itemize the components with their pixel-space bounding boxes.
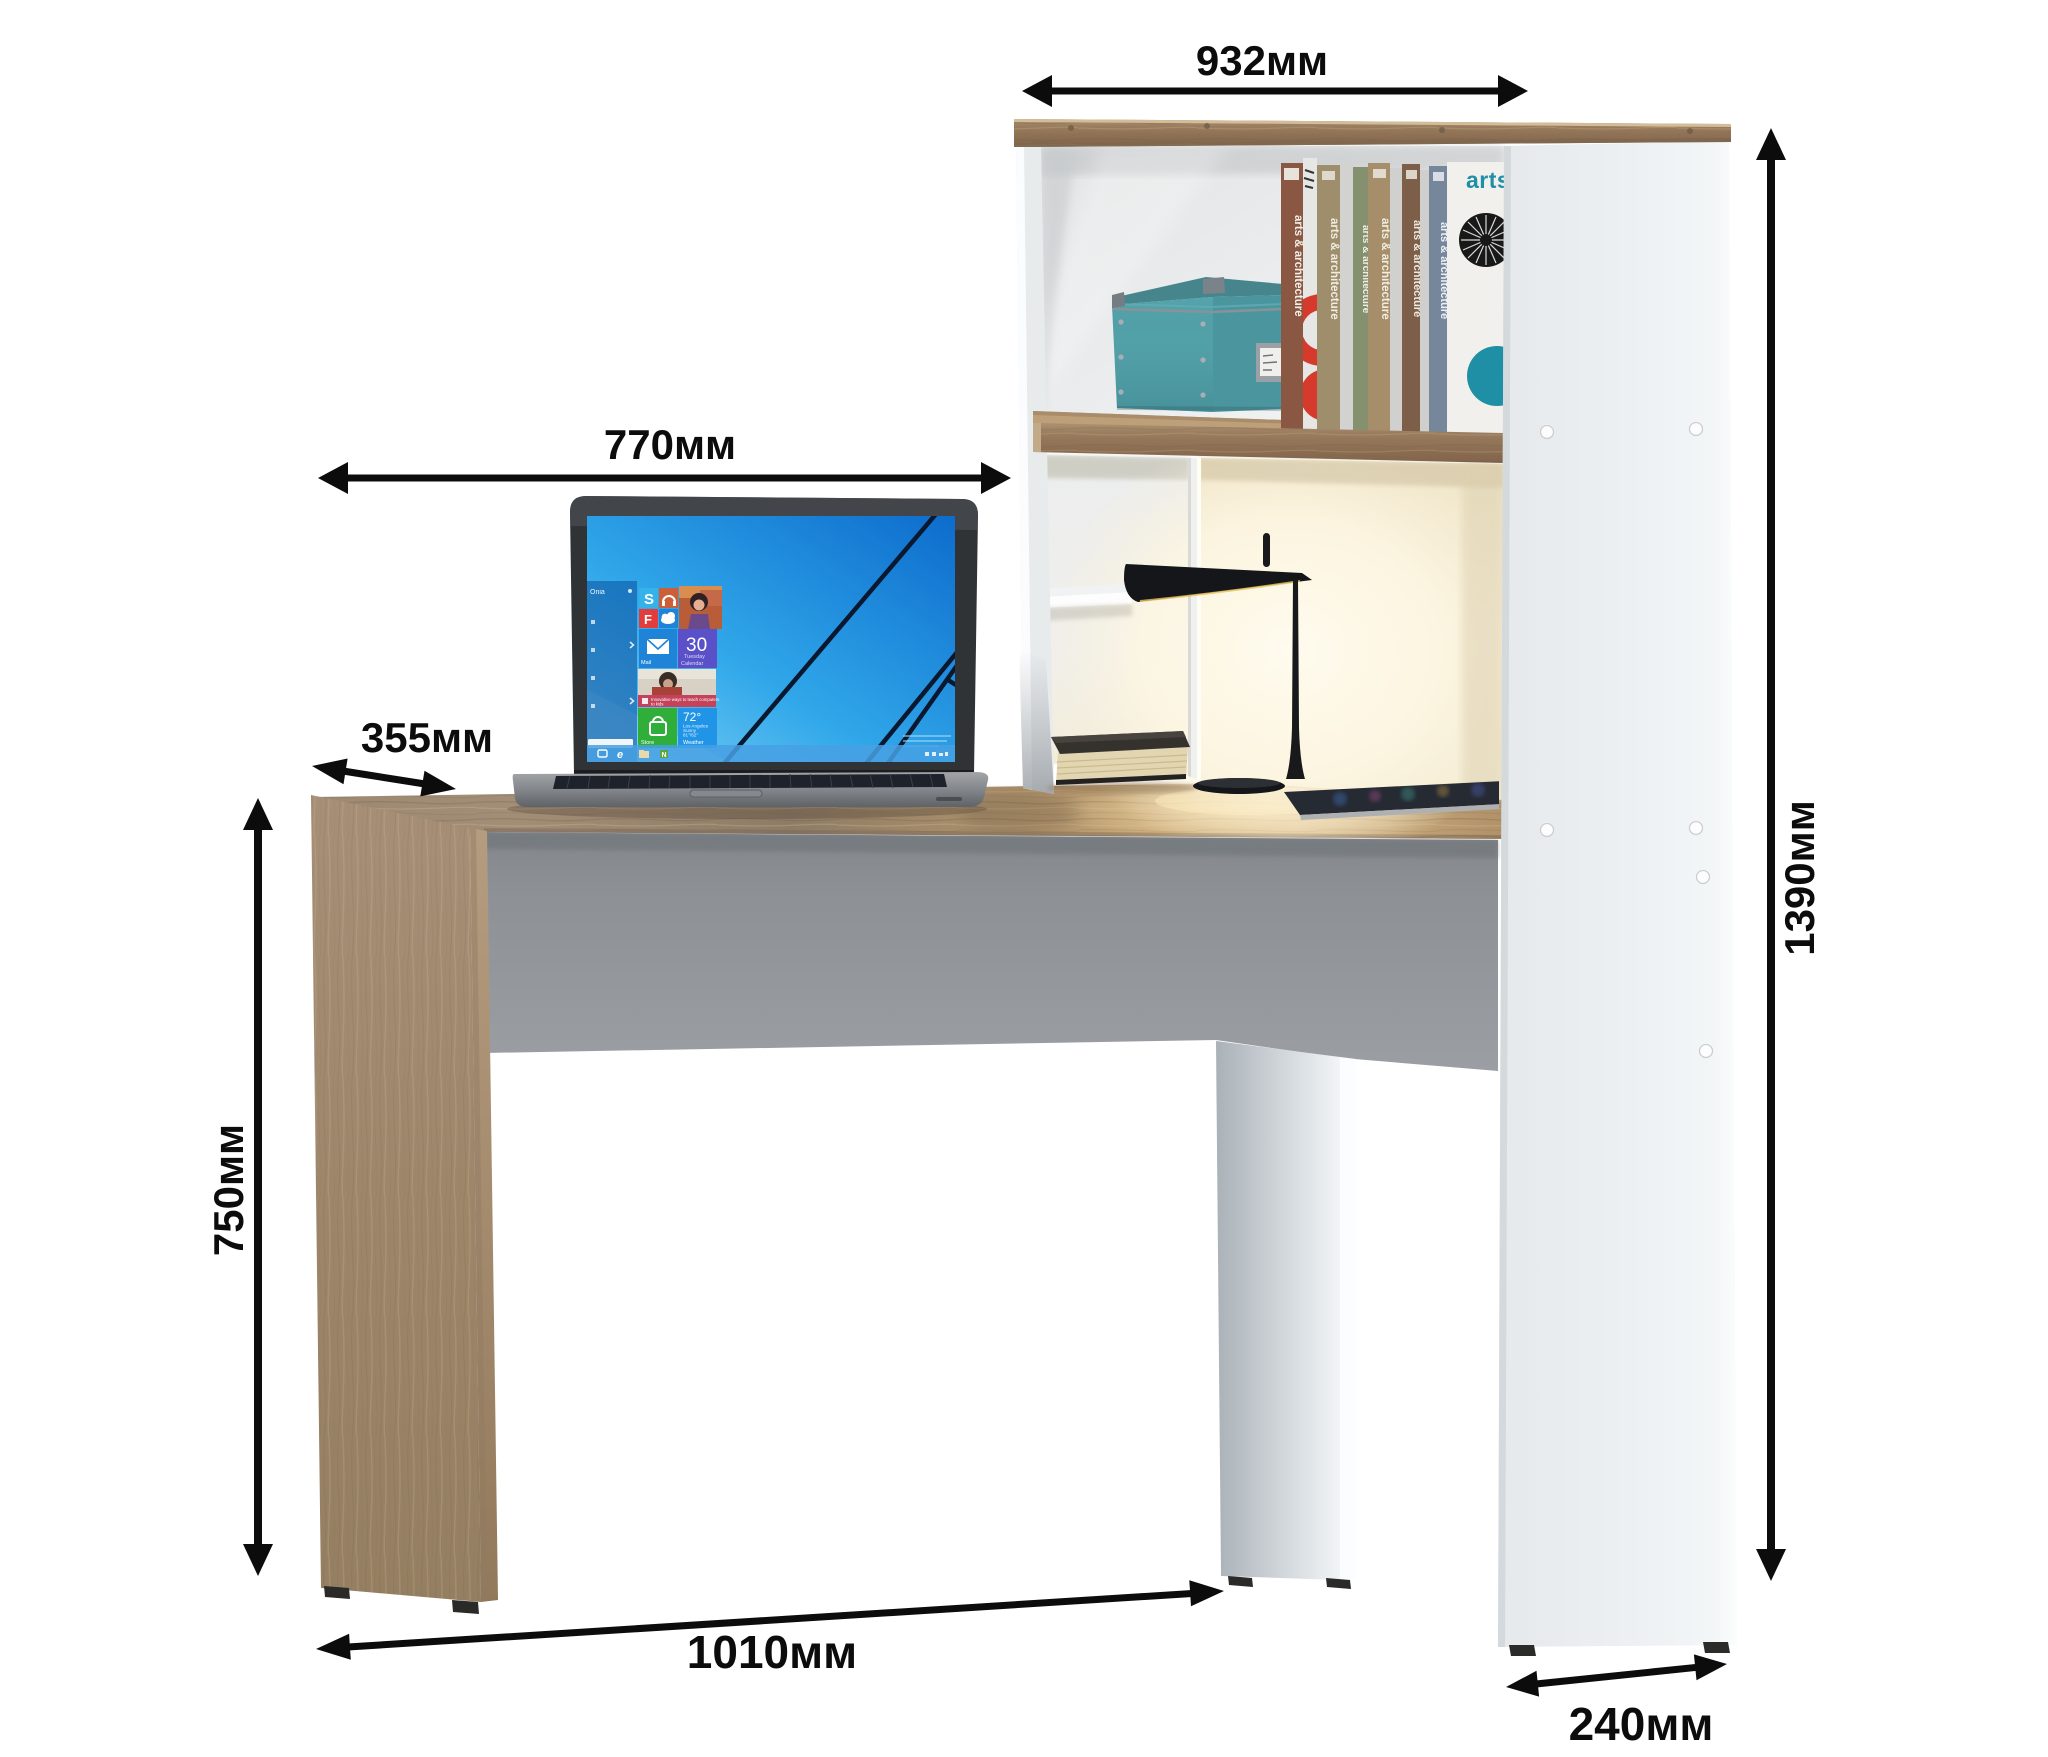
svg-text:30: 30 xyxy=(686,635,707,656)
svg-text:Mail: Mail xyxy=(641,660,651,666)
svg-text:240мм: 240мм xyxy=(1569,1698,1714,1750)
svg-text:Onia: Onia xyxy=(590,589,605,596)
svg-text:750мм: 750мм xyxy=(205,1124,252,1256)
svg-text:S: S xyxy=(644,591,654,608)
svg-text:arts & architecture: arts & architecture xyxy=(1292,215,1304,317)
svg-text:1010мм: 1010мм xyxy=(687,1626,857,1678)
svg-text:Tuesday: Tuesday xyxy=(684,654,705,660)
svg-text:355мм: 355мм xyxy=(361,714,493,761)
svg-text:770мм: 770мм xyxy=(604,421,736,468)
svg-text:arts & architecture: arts & architecture xyxy=(1328,218,1340,320)
svg-text:arts & architecture: arts & architecture xyxy=(1379,218,1391,320)
svg-text:932мм: 932мм xyxy=(1196,37,1328,84)
svg-text:to kids: to kids xyxy=(651,702,663,707)
svg-text:arts: arts xyxy=(1466,167,1510,193)
svg-text:1390мм: 1390мм xyxy=(1776,800,1823,956)
svg-text:e: e xyxy=(617,749,623,761)
svg-text:81°/62°: 81°/62° xyxy=(683,733,698,738)
svg-text:Calendar: Calendar xyxy=(681,661,703,667)
svg-text:72°: 72° xyxy=(683,710,701,724)
svg-text:N: N xyxy=(662,752,667,759)
svg-text:F: F xyxy=(644,612,652,627)
